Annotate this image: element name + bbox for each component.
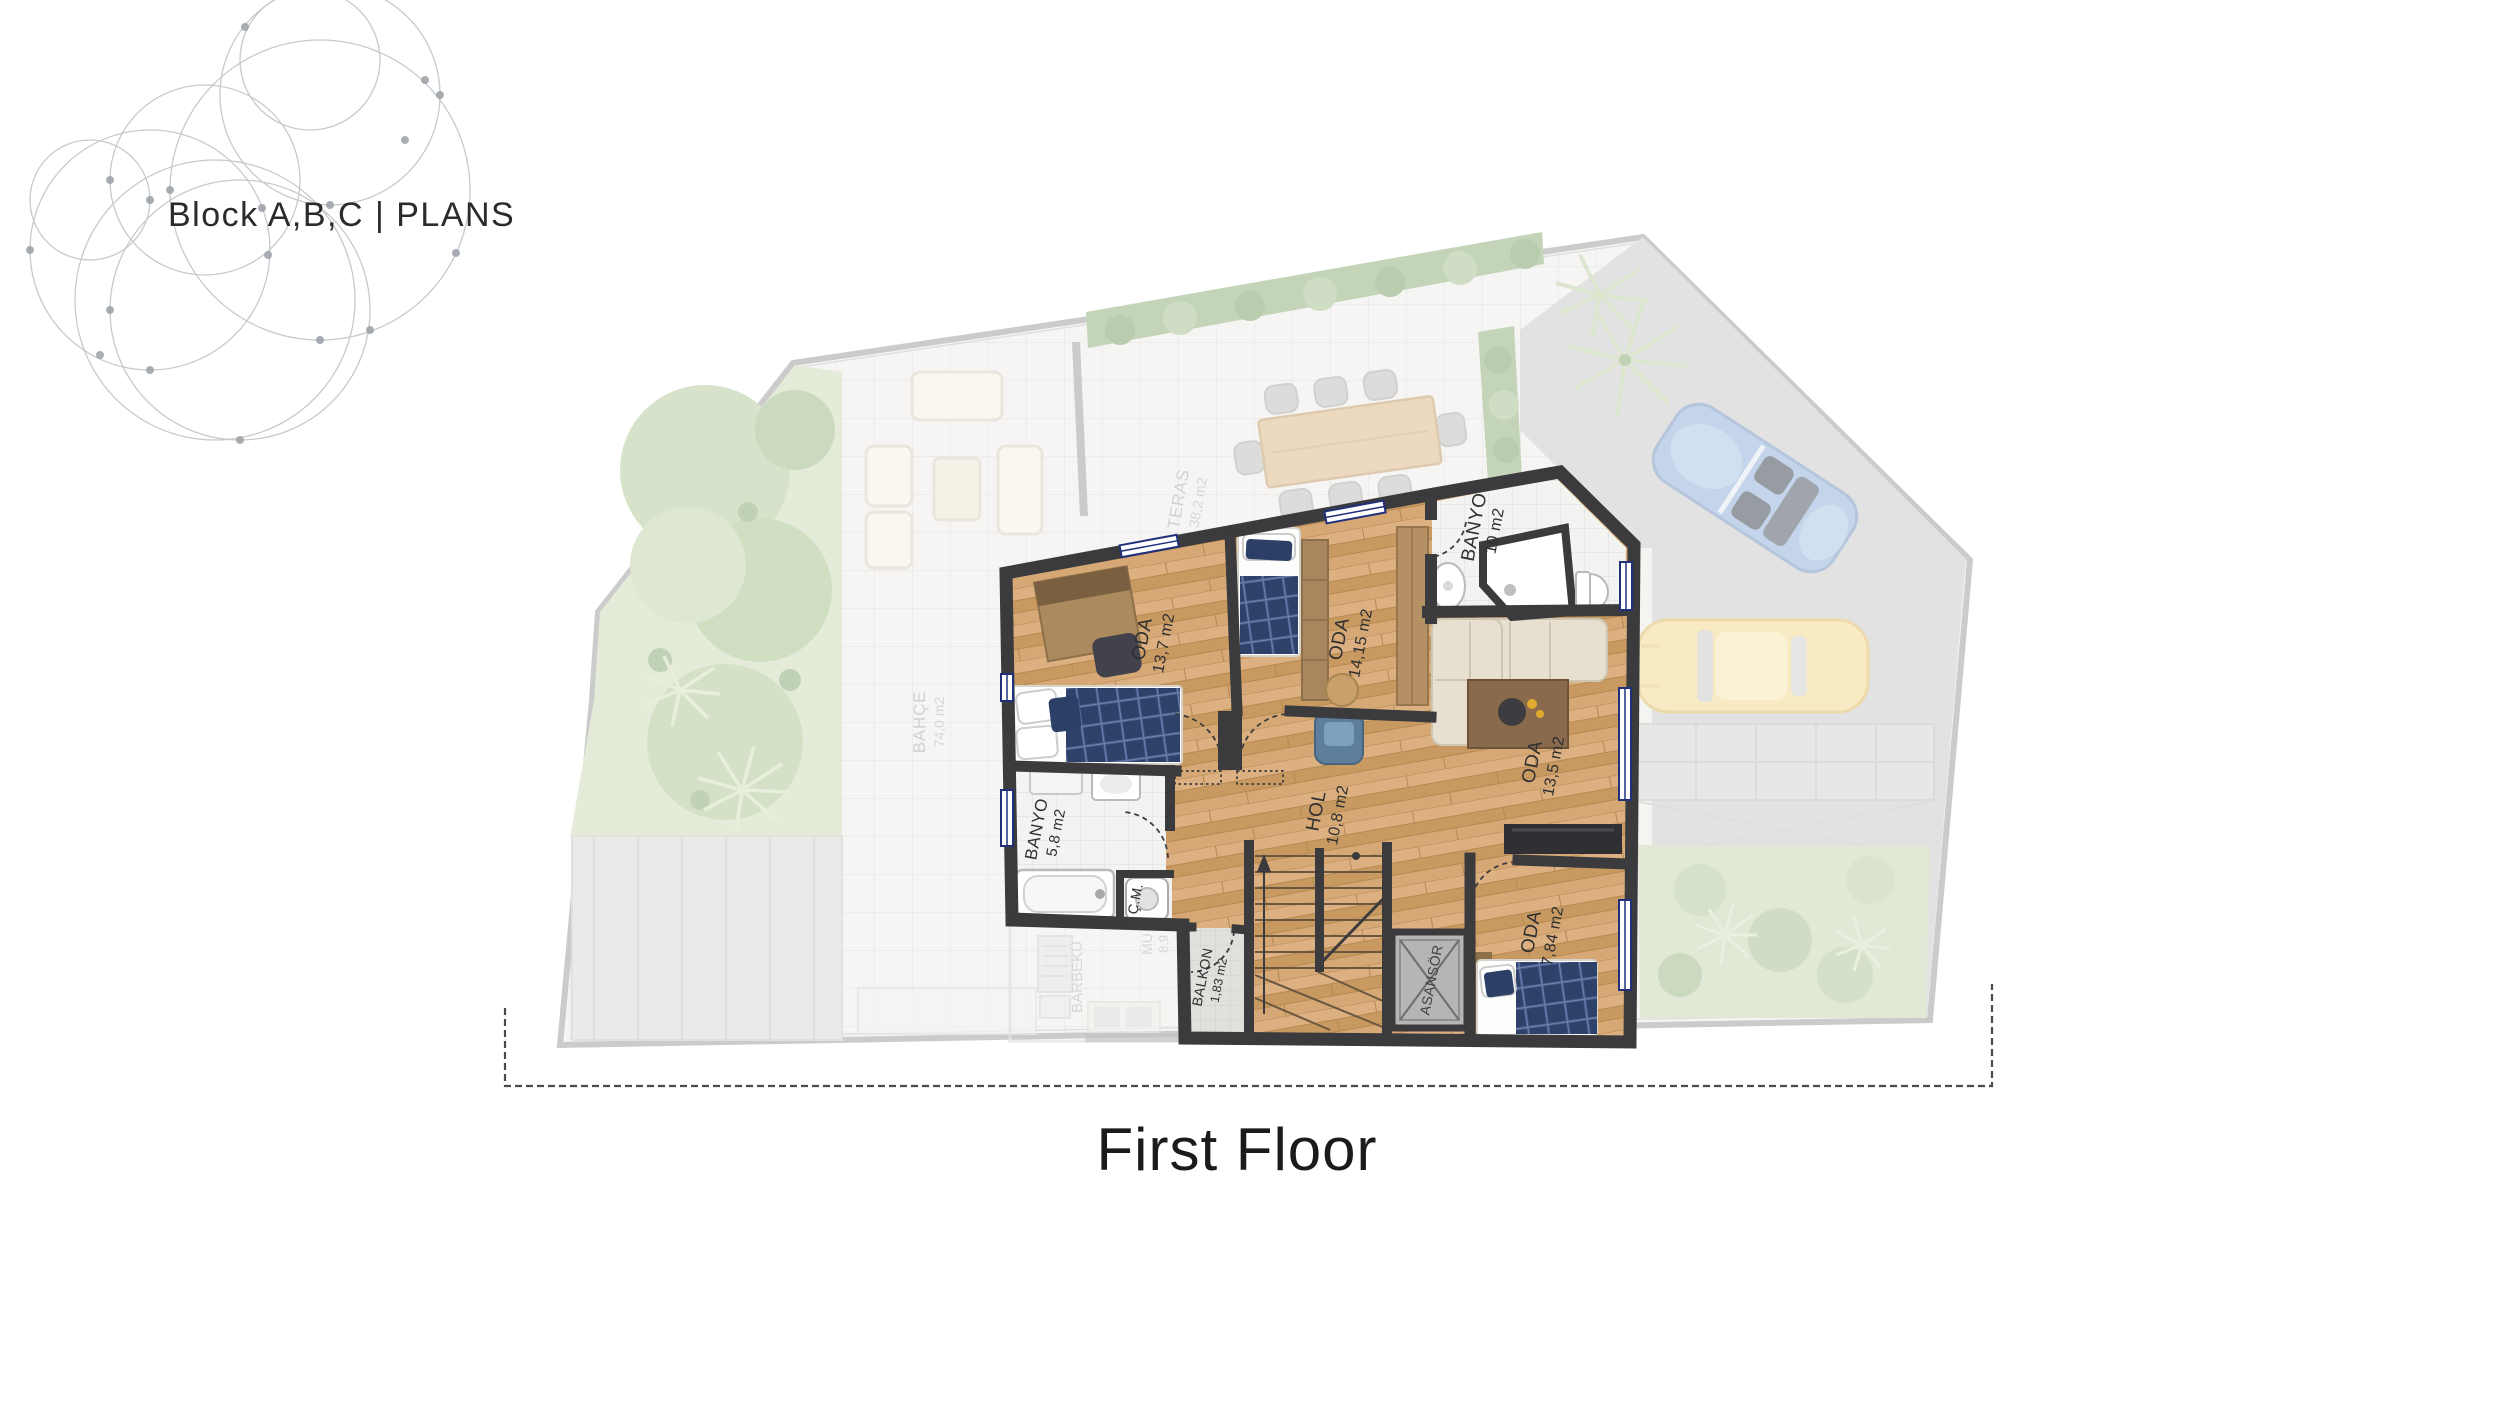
svg-text:74,0 m2: 74,0 m2 [931,696,947,747]
car-yellow [1638,620,1868,712]
bedroom3-furniture [1472,952,1597,1036]
svg-text:BAHÇE: BAHÇE [910,691,929,754]
page-title: Block A,B,C | PLANS [168,196,515,234]
deck-bottom-left [572,836,842,1040]
svg-text:MU: MU [1139,933,1155,955]
floor-plan-page: Block A,B,C | PLANS First Floor [0,0,2498,1418]
garden-left [570,365,842,838]
label-bahce: BAHÇE 74,0 m2 [910,691,947,754]
svg-text:8,9: 8,9 [1156,935,1171,953]
garden-bottom-right [1638,845,1930,1018]
floor-title: First Floor [1097,1116,1378,1183]
label-barbeku: BARBEKÜ [1068,941,1086,1013]
floor-plan-canvas: Block A,B,C | PLANS First Floor [0,0,2498,1418]
wall-stub [1218,711,1242,770]
svg-text:BARBEKÜ: BARBEKÜ [1068,941,1086,1013]
